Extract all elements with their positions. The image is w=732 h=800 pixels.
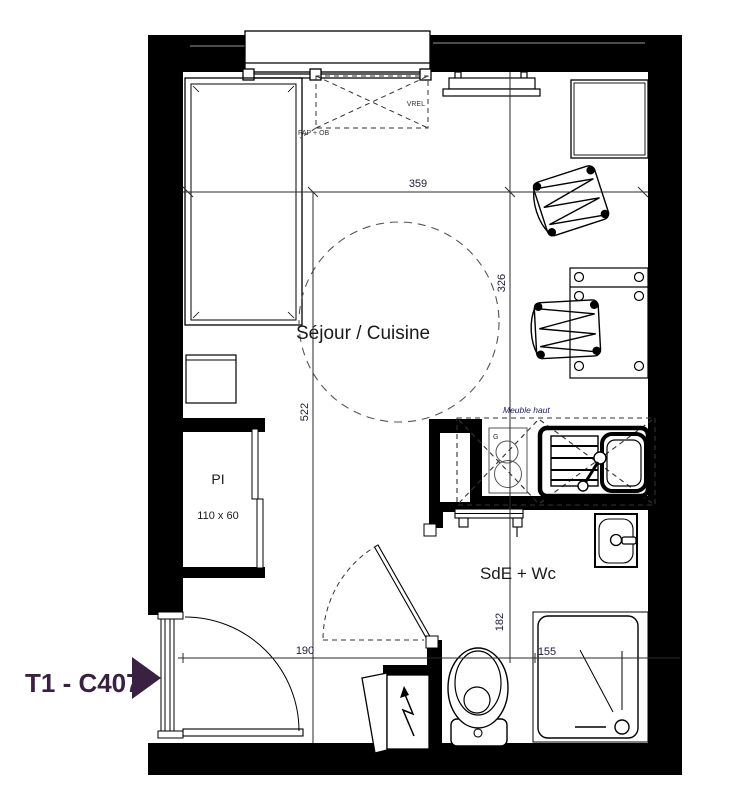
upper-cabinet-note: Meuble haut bbox=[503, 405, 550, 415]
electrical-panel-door bbox=[362, 673, 387, 753]
kitchen-sink bbox=[540, 428, 648, 496]
table bbox=[570, 268, 648, 378]
shower bbox=[533, 612, 648, 742]
closet-sliding-doors bbox=[252, 429, 263, 568]
dim-left-height: 522 bbox=[299, 403, 311, 421]
dim-entrance-width: 190 bbox=[296, 645, 314, 657]
window bbox=[243, 31, 431, 80]
shutter-note: VREL bbox=[407, 101, 425, 108]
wall-elec-top bbox=[383, 665, 429, 675]
cooktop-mark: G bbox=[493, 434, 498, 441]
wall-left bbox=[148, 35, 183, 615]
room-label-living: Séjour / Cuisine bbox=[296, 323, 430, 344]
closet-label: PI bbox=[211, 471, 224, 487]
room-label-bathroom: SdE + Wc bbox=[480, 564, 557, 583]
dim-right-height: 326 bbox=[496, 274, 508, 292]
closet-size-label: 110 x 60 bbox=[197, 510, 238, 522]
desk bbox=[571, 80, 648, 158]
dim-bath-height: 182 bbox=[494, 613, 506, 631]
shower-drain bbox=[615, 720, 629, 734]
electrical-panel bbox=[362, 673, 429, 753]
window-jamb-right bbox=[420, 69, 431, 80]
entrance-arrow-icon bbox=[132, 657, 161, 699]
technical-shaft bbox=[429, 419, 482, 512]
walls bbox=[148, 35, 682, 775]
floor-plan: VREL FAP + OB bbox=[0, 0, 732, 800]
wall-closet-bottom bbox=[183, 567, 265, 578]
vent-note: FAP + OB bbox=[298, 130, 330, 137]
wall-right bbox=[648, 35, 682, 775]
bathroom-door bbox=[323, 524, 438, 648]
bathroom-door-leaf bbox=[375, 545, 433, 642]
towel-rail bbox=[455, 509, 523, 537]
turning-circle bbox=[299, 222, 499, 422]
bathroom-door-hinge bbox=[426, 636, 438, 648]
bedside-cabinet bbox=[186, 355, 236, 403]
entrance-door bbox=[158, 612, 303, 738]
radiator bbox=[443, 72, 540, 96]
dim-shower-width: 155 bbox=[538, 646, 556, 658]
washbasin bbox=[595, 514, 637, 567]
bathroom-door-stop bbox=[424, 524, 436, 536]
floor-plan-page: { "unit": { "label": "T1 - C407", "color… bbox=[0, 0, 732, 800]
dim-top-width: 359 bbox=[409, 178, 427, 190]
chair-1 bbox=[528, 164, 610, 238]
bed bbox=[185, 78, 302, 325]
chair-2 bbox=[530, 300, 601, 359]
toilet bbox=[448, 648, 508, 746]
unit-label: T1 - C407 bbox=[25, 668, 141, 698]
entrance-door-leaf bbox=[183, 729, 303, 736]
